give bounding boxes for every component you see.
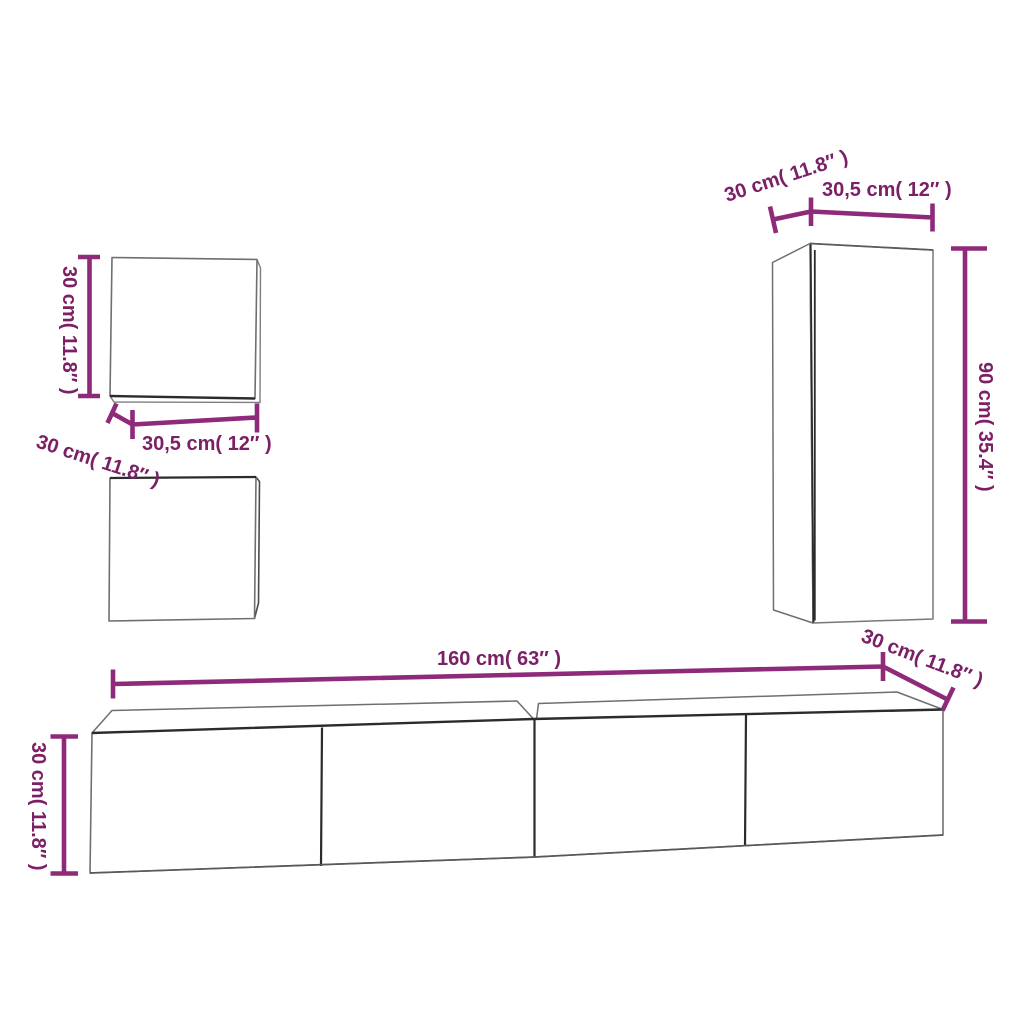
label-tall-cabinet-height: 90 cm( 35.4″ )	[974, 362, 996, 492]
label-tall-cabinet-width: 30,5 cm( 12″ )	[822, 179, 952, 201]
label-small-cabinet-height: 30 cm( 11.8″ )	[58, 266, 80, 395]
dim-small-height-line	[78, 257, 100, 396]
dim-tall-depth-line	[770, 207, 811, 234]
small-cabinet-top-left	[110, 258, 261, 403]
label-small-cabinet-width: 30,5 cm( 12″ )	[142, 433, 272, 455]
dim-small-depth-line	[108, 404, 133, 425]
dim-tall-width-line	[811, 198, 933, 232]
diagram-canvas: 30 cm( 11.8″ ) 30,5 cm( 12″ ) 30 cm( 11.…	[0, 0, 1024, 1024]
label-long-cabinet-depth: 30 cm( 11.8″ )	[858, 625, 986, 692]
label-long-cabinet-height: 30 cm( 11.8″ )	[27, 742, 49, 871]
dim-long-height-line	[51, 737, 79, 874]
tall-cabinet-right	[773, 244, 934, 624]
label-long-cabinet-width: 160 cm( 63″ )	[437, 648, 561, 670]
product-dimension-diagram: 30 cm( 11.8″ ) 30,5 cm( 12″ ) 30 cm( 11.…	[0, 0, 1024, 1024]
cabinet-front-face	[109, 477, 256, 621]
cabinet-side-face	[773, 244, 814, 624]
small-cabinet-mid-left	[109, 477, 260, 621]
cabinet-front-face	[90, 710, 943, 874]
cabinet-front-face	[110, 258, 257, 399]
cabinet-front-face	[810, 244, 933, 624]
long-cabinet-bottom	[90, 692, 943, 873]
